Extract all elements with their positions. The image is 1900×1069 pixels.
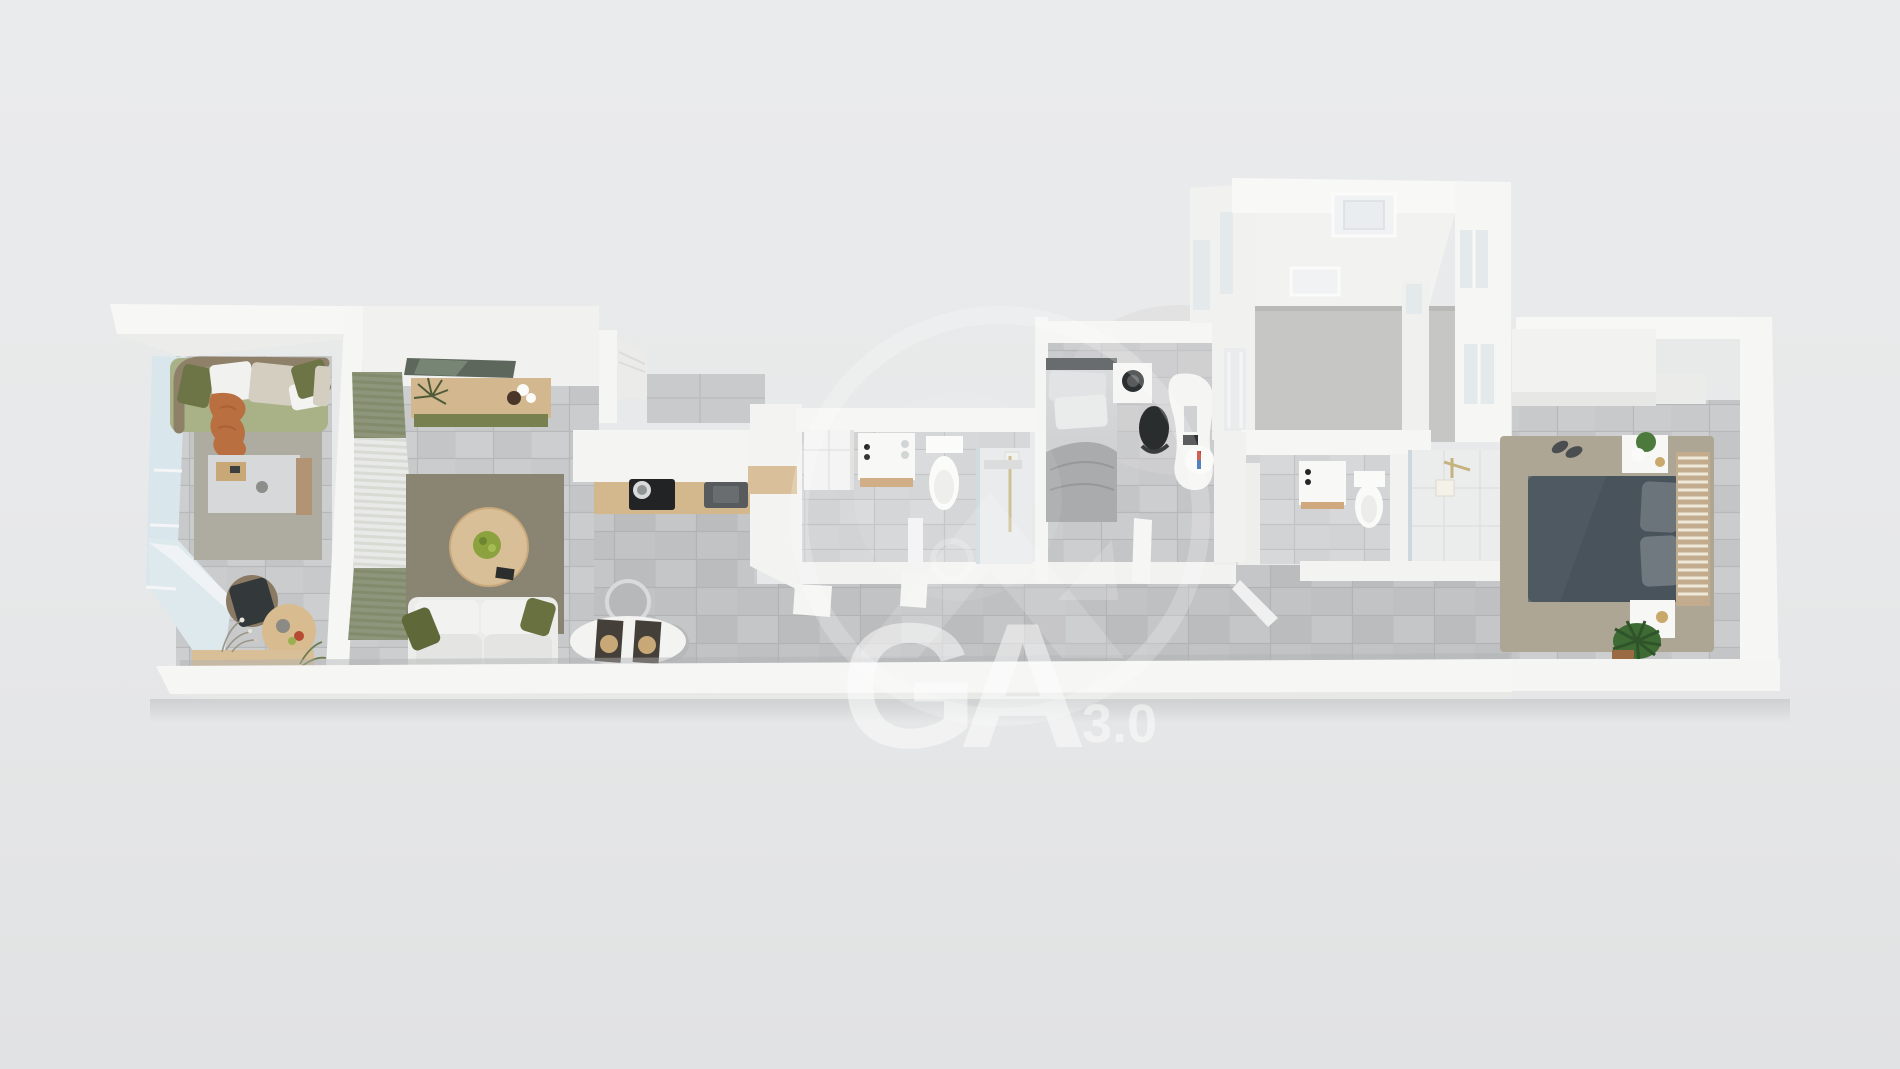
- svg-text:GA: GA: [840, 586, 1082, 785]
- svg-text:3.0: 3.0: [1082, 694, 1157, 754]
